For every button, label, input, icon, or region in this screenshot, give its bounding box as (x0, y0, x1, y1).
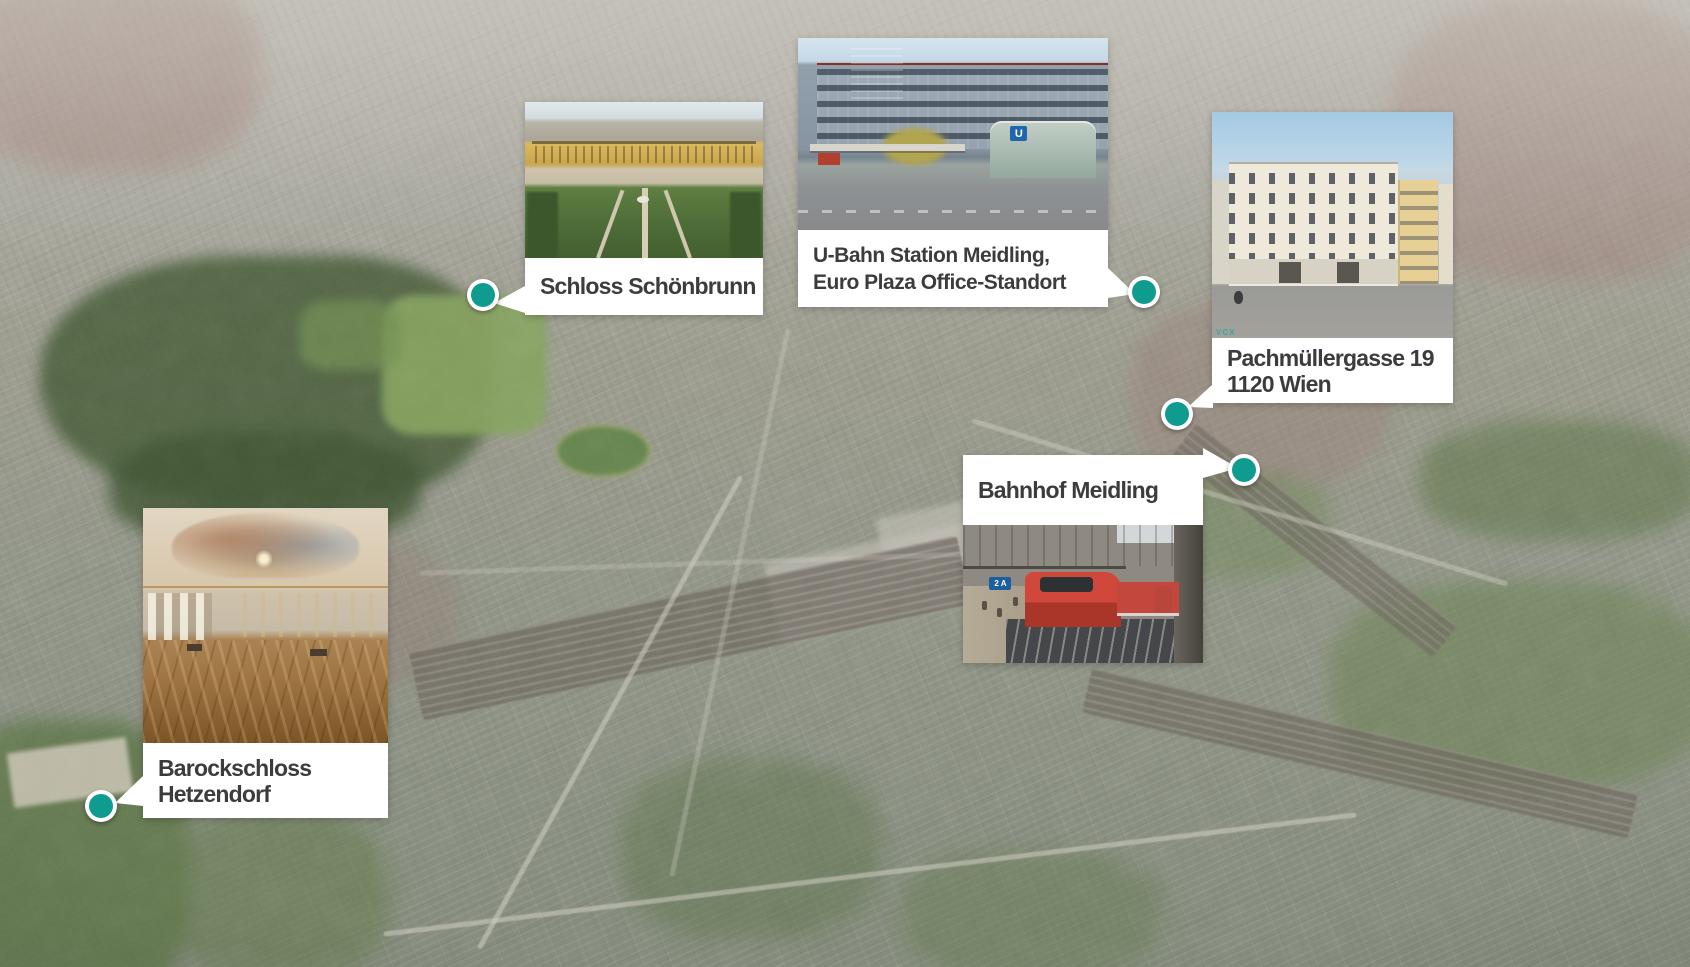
palace-windows (535, 146, 754, 163)
station-pavilion (990, 121, 1095, 179)
marker-schloss-schoenbrunn[interactable] (467, 279, 499, 311)
gold-trim (143, 586, 388, 588)
exhibit-bench (187, 644, 202, 651)
garden-path (663, 190, 691, 258)
ceiling-fresco (172, 513, 358, 579)
marker-bahnhof-meidling[interactable] (1228, 454, 1260, 486)
bahnhof-meidling-train-photo: 2 A (963, 525, 1203, 663)
callout-label: Schloss Schönbrunn (525, 258, 763, 315)
yellow-neighbor-building (1398, 180, 1439, 284)
platform-sign: 2 A (989, 577, 1011, 590)
marker-dot (471, 283, 495, 307)
street-marking (798, 210, 1108, 213)
entrance-door (1337, 262, 1359, 282)
callout-label: Barockschloss Hetzendorf (143, 743, 388, 818)
callout-label: U-Bahn Station Meidling, Euro Plaza Offi… (798, 230, 1108, 307)
person (997, 608, 1002, 617)
callout-u-bahn-station-meidling[interactable]: U U-Bahn Station Meidling, Euro Plaza Of… (798, 38, 1108, 307)
shop-sign (818, 153, 840, 165)
cyclist (1234, 291, 1243, 304)
platform-canopy (963, 525, 1174, 566)
garden-fountain (637, 196, 649, 203)
wall-pilasters (243, 593, 378, 638)
marker-pachmuellergasse-19[interactable] (1161, 398, 1193, 430)
render-watermark: VCX (1216, 328, 1235, 337)
callout-label: Bahnhof Meidling (963, 455, 1203, 525)
label-line: Schloss Schönbrunn (540, 273, 763, 300)
second-train (1155, 586, 1172, 614)
label-line: Euro Plaza Office-Standort (813, 269, 1108, 296)
parquet-floor (143, 640, 388, 743)
label-line: Bahnhof Meidling (978, 477, 1203, 504)
marker-u-bahn-station-meidling[interactable] (1128, 276, 1160, 308)
callout-schloss-schoenbrunn[interactable]: Schloss Schönbrunn (525, 102, 763, 315)
marker-dot (1132, 280, 1156, 304)
exhibit-bench (310, 649, 327, 656)
canopy-edge (963, 566, 1126, 569)
label-line: U-Bahn Station Meidling, (813, 242, 1108, 269)
person (982, 601, 987, 610)
marker-dot (89, 794, 113, 818)
label-line: Barockschloss (158, 755, 388, 781)
callout-bahnhof-meidling[interactable]: Bahnhof Meidling 2 A (963, 455, 1203, 663)
marker-dot (1232, 458, 1256, 482)
garden-hedge (527, 192, 558, 258)
hall-windows (148, 593, 212, 640)
neighbor-building (1439, 184, 1453, 283)
u-bahn-sign: U (1010, 126, 1027, 141)
marker-barockschloss-hetzendorf[interactable] (85, 790, 117, 822)
schoenbrunn-palace-photo (525, 102, 763, 258)
label-line: Hetzendorf (158, 781, 388, 807)
ground-floor (1229, 259, 1398, 284)
callout-label: Pachmüllergasse 19 1120 Wien (1212, 338, 1453, 403)
stop-canopy (810, 144, 965, 152)
callout-barockschloss-hetzendorf[interactable]: Barockschloss Hetzendorf (143, 508, 388, 818)
garden-hedge (730, 192, 761, 258)
label-line: Pachmüllergasse 19 (1227, 345, 1453, 371)
callout-pachmuellergasse-19[interactable]: VCX Pachmüllergasse 19 1120 Wien (1212, 112, 1453, 403)
pachmuellergasse-rendering-photo: VCX (1212, 112, 1453, 338)
locomotive-windshield (1040, 577, 1093, 591)
euro-plaza-building-photo: U (798, 38, 1108, 230)
neighbor-building (1212, 180, 1229, 284)
person (1013, 597, 1018, 606)
palace-roof (532, 141, 756, 144)
aerial-map: Schloss Schönbrunn U U-Bahn Station Meid… (0, 0, 1690, 967)
hetzendorf-interior-photo (143, 508, 388, 743)
garden-path (597, 190, 625, 258)
entrance-door (1279, 262, 1301, 282)
chandelier (256, 550, 272, 568)
marker-dot (1165, 402, 1189, 426)
glass-tower (851, 48, 904, 102)
red-locomotive (1025, 572, 1121, 627)
label-line: 1120 Wien (1227, 371, 1453, 397)
